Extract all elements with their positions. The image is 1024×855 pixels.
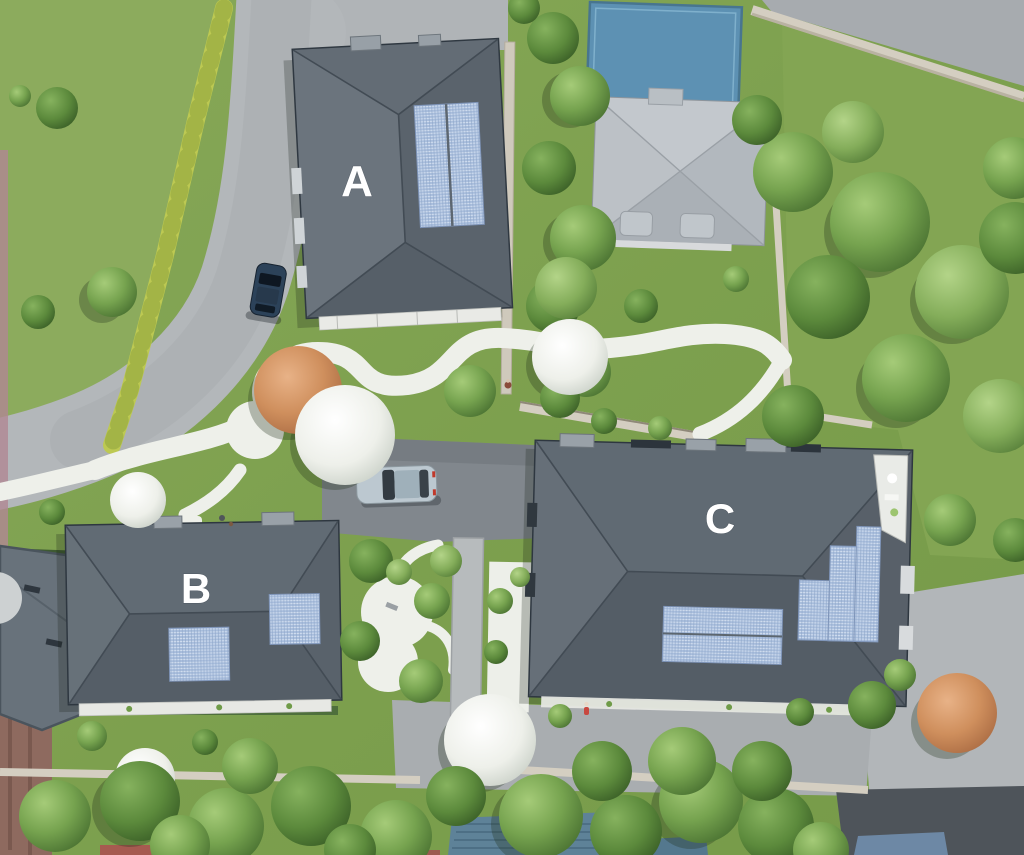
blossom-tree	[110, 472, 166, 528]
solar-array-c4	[854, 526, 881, 642]
blossom-tree	[295, 385, 395, 485]
site-plan-canvas: A B C	[0, 0, 1024, 855]
aerial-render: A B C	[0, 0, 1024, 855]
blossom-tree	[532, 319, 608, 395]
person	[584, 702, 589, 715]
solar-array-b1	[169, 627, 230, 681]
building-b	[56, 511, 341, 716]
building-a-label: A	[341, 157, 373, 206]
dormer	[680, 213, 715, 238]
autumn-tree	[917, 673, 997, 753]
building-a	[282, 29, 512, 331]
building-c	[519, 433, 918, 717]
building-c-label: C	[705, 495, 735, 542]
solar-array-b2	[269, 594, 320, 645]
building-b-label: B	[181, 565, 211, 612]
dormer	[620, 211, 653, 236]
